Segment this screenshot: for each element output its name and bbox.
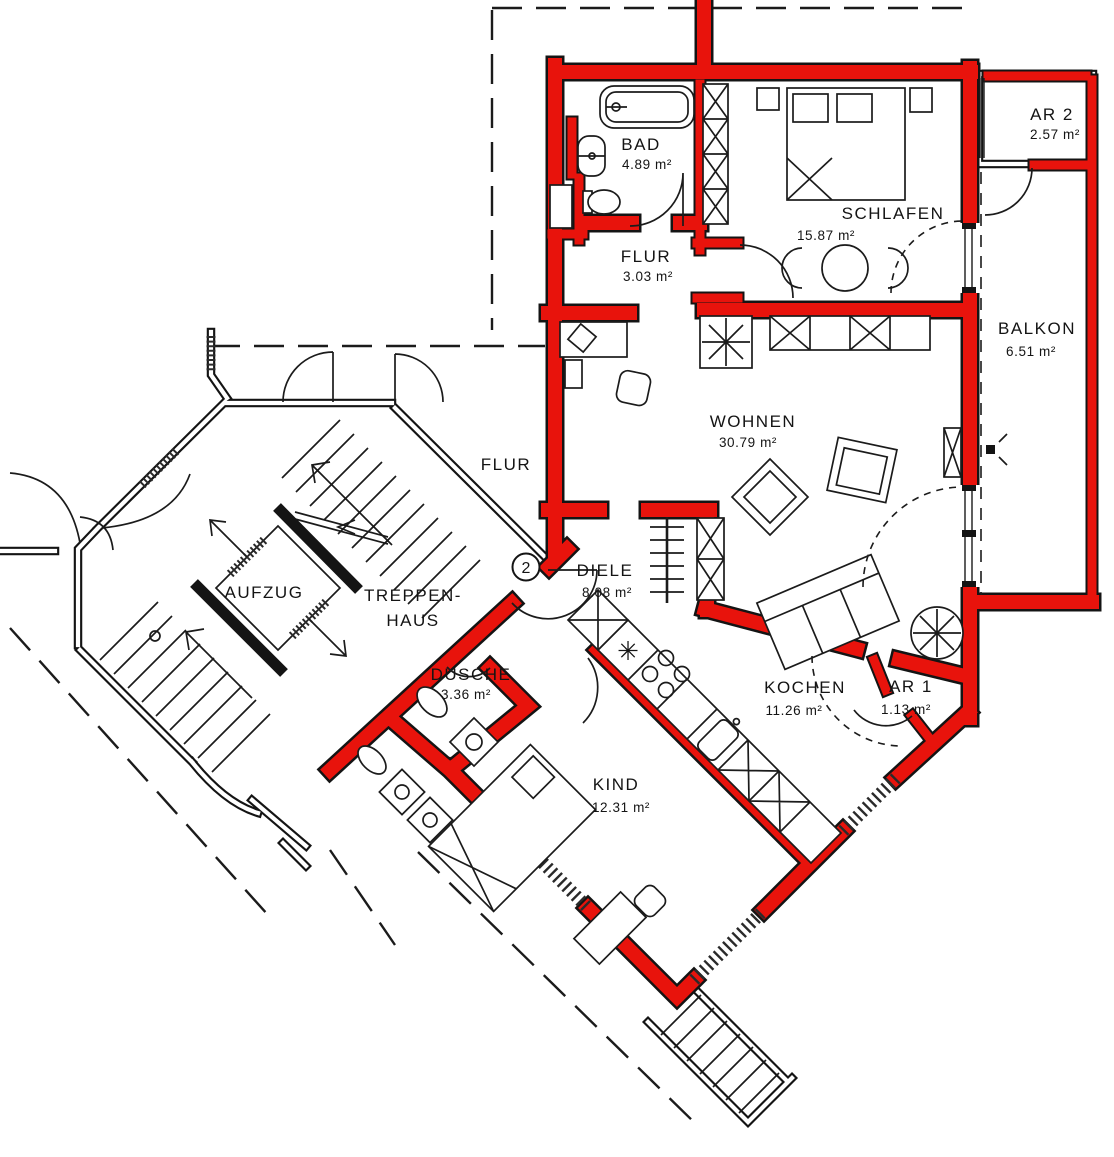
kochen-window bbox=[843, 778, 896, 831]
nightstand bbox=[757, 88, 779, 110]
room-label-flur-apt: FLUR bbox=[621, 247, 671, 266]
room-label-schlafen: SCHLAFEN bbox=[842, 204, 945, 223]
sideboard-icon bbox=[770, 316, 930, 350]
cabinet-icon bbox=[944, 428, 961, 477]
room-label-dusche: DUSCHE bbox=[431, 665, 512, 684]
room-area-bad: 4.89 m² bbox=[622, 157, 672, 172]
room-label-bad: BAD bbox=[621, 135, 660, 154]
unit-number-badge: 2 bbox=[513, 554, 540, 581]
washbasin-icon bbox=[578, 136, 605, 176]
wohnen-balcony-window bbox=[960, 485, 980, 587]
table-and-chairs-icon bbox=[782, 245, 908, 291]
room-area-kochen: 11.26 m² bbox=[765, 703, 822, 718]
room-area-dusche: 3.36 m² bbox=[441, 687, 491, 702]
double-bed-icon bbox=[787, 88, 905, 200]
room-label-wohnen: WOHNEN bbox=[710, 412, 796, 431]
shaft-box bbox=[550, 185, 572, 228]
armchair-icon bbox=[827, 437, 897, 502]
coffee-table-icon bbox=[732, 459, 808, 535]
unit-number-text: 2 bbox=[522, 560, 531, 577]
room-area-diele: 8.08 m² bbox=[582, 585, 632, 600]
room-label-ar1: AR 1 bbox=[889, 677, 933, 696]
plant-icon bbox=[700, 316, 752, 368]
room-area-kind: 12.31 m² bbox=[592, 800, 650, 815]
plant-icon bbox=[911, 607, 963, 659]
room-label-kochen: KOCHEN bbox=[764, 678, 846, 697]
nightstand bbox=[910, 88, 932, 112]
coat-rack-icon bbox=[650, 517, 684, 603]
kind-terrace-window bbox=[694, 910, 764, 980]
floor-plan-page: ✳ bbox=[0, 0, 1114, 1157]
desk-icon bbox=[560, 322, 652, 407]
balcony-lamp-icon bbox=[986, 445, 995, 454]
toilet-icon bbox=[583, 190, 620, 214]
lamp-rays bbox=[999, 434, 1007, 465]
common-door-swings bbox=[10, 352, 443, 550]
label-treppenhaus-2: HAUS bbox=[386, 611, 439, 630]
wardrobe-icon bbox=[703, 84, 728, 224]
room-label-balkon: BALKON bbox=[998, 319, 1076, 338]
room-area-ar1: 1.13 m² bbox=[881, 702, 931, 717]
chair-icon bbox=[615, 369, 652, 407]
room-area-schlafen: 15.87 m² bbox=[797, 228, 855, 243]
room-area-ar2: 2.57 m² bbox=[1030, 127, 1080, 142]
bathtub-icon bbox=[600, 86, 694, 128]
room-area-wohnen: 30.79 m² bbox=[719, 435, 777, 450]
freezer-star-icon: ✳ bbox=[617, 636, 639, 666]
label-flur-common: FLUR bbox=[481, 455, 531, 474]
room-label-kind: KIND bbox=[593, 775, 640, 794]
room-area-balkon: 6.51 m² bbox=[1006, 344, 1056, 359]
hall-cabinet-icon bbox=[697, 518, 724, 600]
room-label-diele: DIELE bbox=[577, 561, 634, 580]
floor-plan-drawing: ✳ bbox=[0, 0, 1114, 1157]
label-treppenhaus-1: TREPPEN- bbox=[364, 586, 462, 605]
room-label-ar2: AR 2 bbox=[1030, 105, 1074, 124]
room-area-flur-apt: 3.03 m² bbox=[623, 269, 673, 284]
label-aufzug: AUFZUG bbox=[225, 583, 304, 602]
kochen-door-swing bbox=[812, 656, 902, 746]
schlafen-balcony-window bbox=[960, 223, 980, 293]
